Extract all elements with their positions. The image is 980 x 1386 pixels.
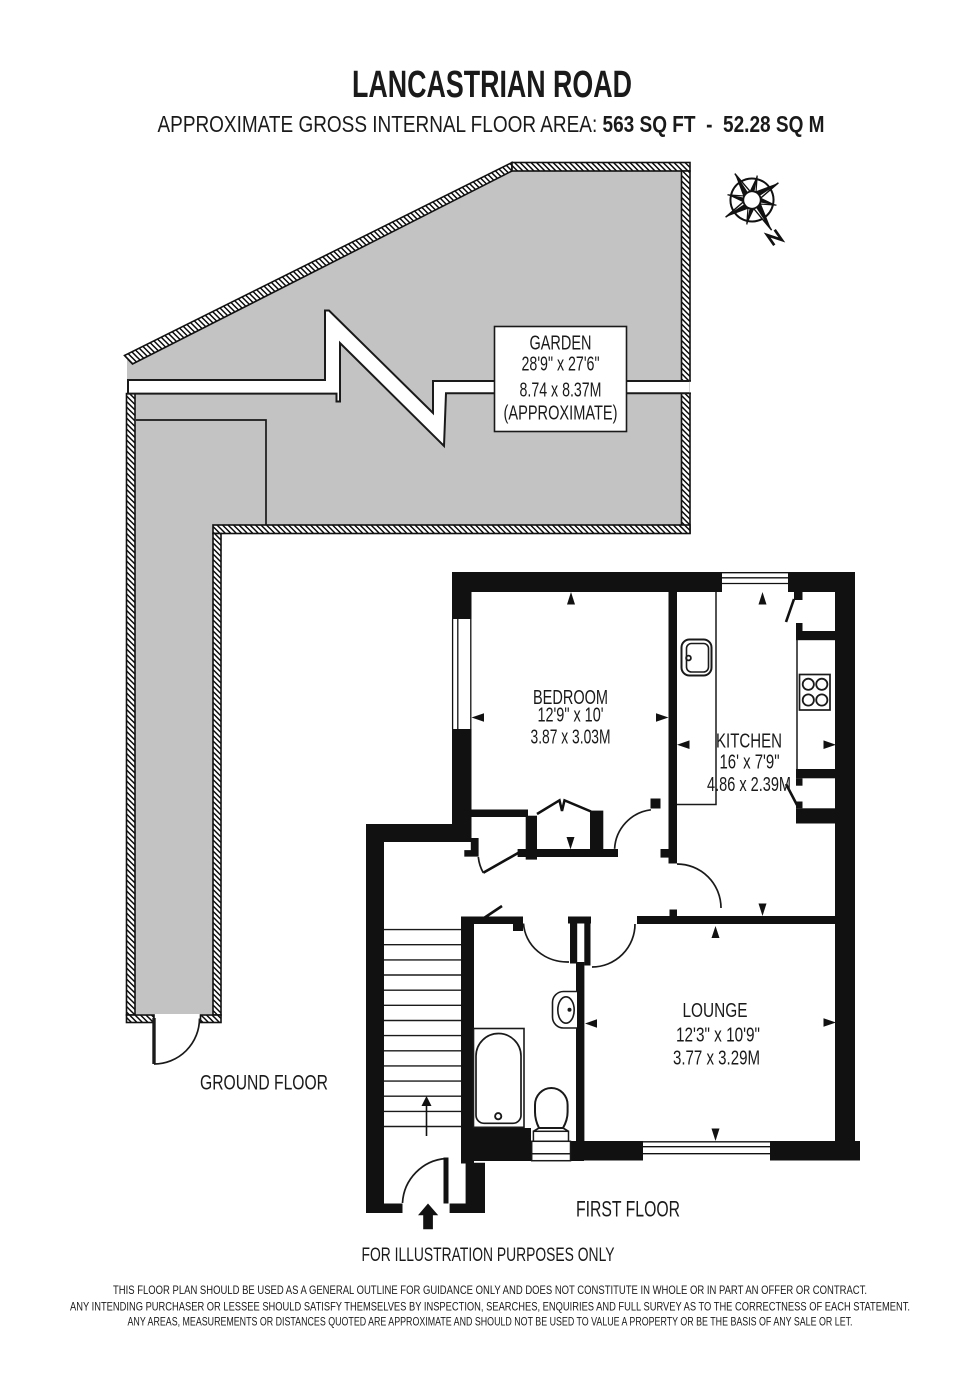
svg-text:FOR ILLUSTRATION PURPOSES ONLY: FOR ILLUSTRATION PURPOSES ONLY — [362, 1245, 615, 1266]
svg-text:APPROXIMATE GROSS INTERNAL FLO: APPROXIMATE GROSS INTERNAL FLOOR AREA: 5… — [158, 111, 825, 137]
svg-text:4.86 x 2.39M: 4.86 x 2.39M — [707, 773, 791, 796]
svg-text:28'9" x 27'6": 28'9" x 27'6" — [522, 353, 600, 376]
svg-text:12'3" x 10'9": 12'3" x 10'9" — [676, 1024, 760, 1047]
svg-text:12'9" x 10': 12'9" x 10' — [538, 704, 604, 727]
svg-text:FIRST FLOOR: FIRST FLOOR — [576, 1197, 680, 1222]
svg-text:3.87 x 3.03M: 3.87 x 3.03M — [531, 726, 611, 749]
svg-text:GROUND FLOOR: GROUND FLOOR — [200, 1071, 328, 1095]
svg-text:ANY AREAS, MEASUREMENTS OR DIS: ANY AREAS, MEASUREMENTS OR DISTANCES QUO… — [128, 1316, 853, 1329]
svg-text:LOUNGE: LOUNGE — [683, 999, 748, 1022]
svg-text:THIS FLOOR PLAN SHOULD BE USED: THIS FLOOR PLAN SHOULD BE USED AS A GENE… — [113, 1284, 867, 1297]
svg-text:8.74 x 8.37M: 8.74 x 8.37M — [520, 379, 602, 402]
svg-text:GARDEN: GARDEN — [530, 332, 592, 355]
svg-text:LANCASTRIAN ROAD: LANCASTRIAN ROAD — [352, 64, 632, 106]
svg-text:KITCHEN: KITCHEN — [716, 730, 782, 753]
svg-text:ANY INTENDING PURCHASER OR LES: ANY INTENDING PURCHASER OR LESSEE SHOULD… — [70, 1301, 910, 1314]
svg-text:3.77 x 3.29M: 3.77 x 3.29M — [673, 1047, 760, 1070]
svg-text:(APPROXIMATE): (APPROXIMATE) — [504, 402, 618, 425]
svg-text:16' x 7'9": 16' x 7'9" — [720, 751, 780, 774]
